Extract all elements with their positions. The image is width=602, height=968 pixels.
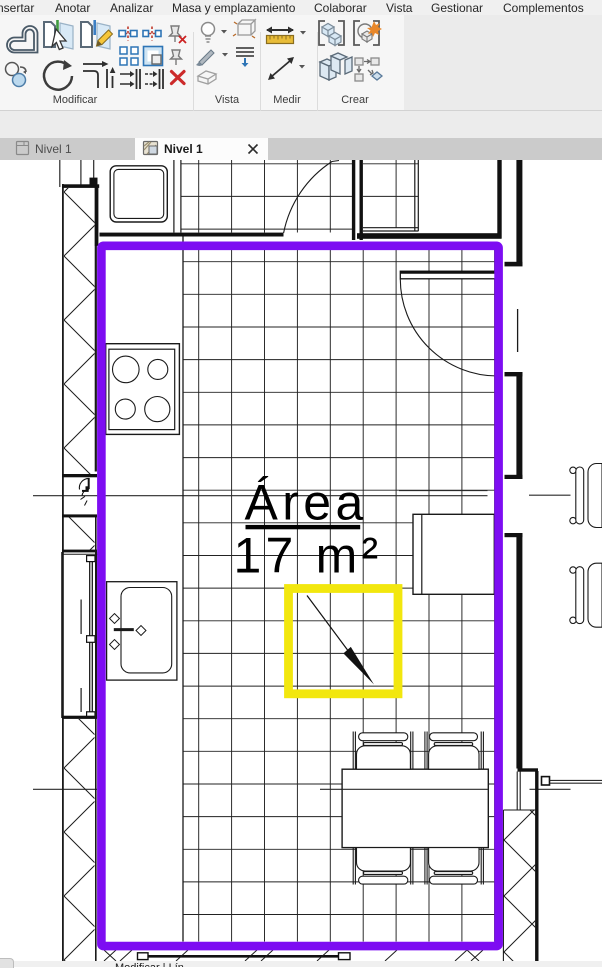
- svg-text:17 m²: 17 m²: [234, 528, 383, 584]
- svg-text:Nivel 1: Nivel 1: [164, 142, 203, 156]
- svg-text:Área: Área: [245, 475, 368, 531]
- svg-text:Nivel 1: Nivel 1: [35, 142, 72, 156]
